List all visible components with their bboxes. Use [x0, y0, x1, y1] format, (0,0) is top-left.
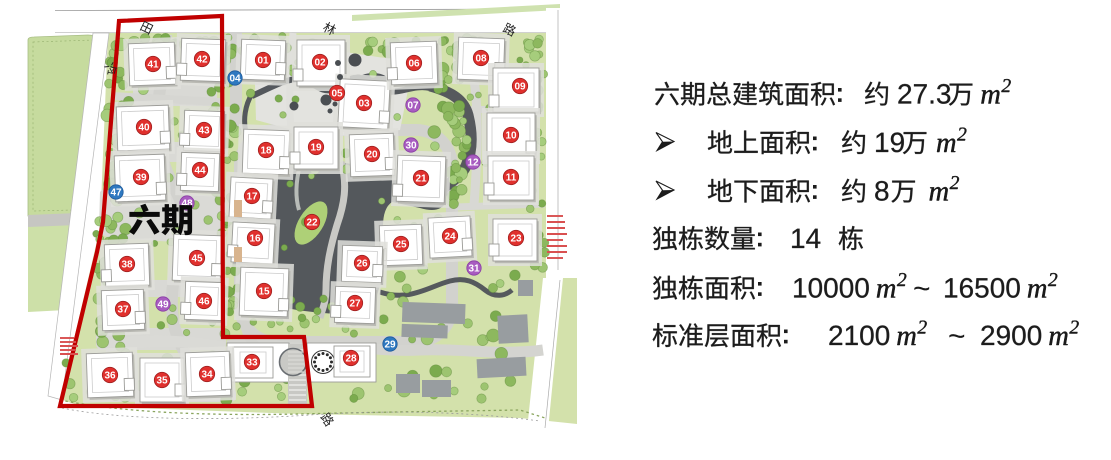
svg-text:35: 35: [156, 375, 168, 386]
svg-text:15: 15: [258, 286, 270, 297]
svg-text:27: 27: [349, 298, 361, 309]
svg-text:20: 20: [366, 149, 378, 160]
svg-text:02: 02: [314, 57, 326, 68]
svg-text:37: 37: [117, 304, 129, 315]
svg-text:23: 23: [510, 233, 522, 244]
svg-text:33: 33: [246, 357, 258, 368]
svg-text:01: 01: [257, 55, 269, 66]
svg-text:45: 45: [191, 253, 203, 264]
svg-text:28: 28: [345, 353, 357, 364]
svg-text:19: 19: [310, 142, 322, 153]
svg-text:16: 16: [249, 233, 261, 244]
svg-text:36: 36: [104, 370, 116, 381]
svg-text:24: 24: [444, 231, 456, 242]
svg-text:03: 03: [358, 98, 370, 109]
svg-text:08: 08: [475, 53, 487, 64]
svg-text:41: 41: [147, 59, 159, 70]
svg-text:44: 44: [194, 165, 206, 176]
svg-text:18: 18: [260, 145, 272, 156]
svg-text:49: 49: [157, 299, 169, 310]
svg-text:30: 30: [405, 140, 417, 151]
svg-text:17: 17: [246, 191, 258, 202]
svg-text:07: 07: [407, 100, 419, 111]
svg-text:10: 10: [505, 130, 517, 141]
svg-text:42: 42: [196, 54, 208, 65]
svg-text:40: 40: [138, 122, 150, 133]
svg-text:26: 26: [356, 258, 368, 269]
svg-text:34: 34: [201, 369, 213, 380]
svg-text:38: 38: [121, 259, 133, 270]
svg-text:39: 39: [135, 172, 147, 183]
svg-text:43: 43: [198, 125, 210, 136]
svg-text:05: 05: [331, 88, 343, 99]
svg-text:29: 29: [384, 339, 396, 350]
svg-text:06: 06: [408, 58, 420, 69]
svg-text:11: 11: [506, 172, 517, 183]
svg-text:09: 09: [514, 81, 526, 92]
svg-text:22: 22: [306, 217, 318, 228]
svg-text:47: 47: [110, 187, 122, 198]
svg-text:25: 25: [395, 239, 407, 250]
svg-text:46: 46: [198, 296, 210, 307]
svg-text:31: 31: [468, 263, 480, 274]
svg-text:21: 21: [415, 173, 427, 184]
svg-text:12: 12: [467, 157, 479, 168]
svg-text:04: 04: [229, 73, 241, 84]
